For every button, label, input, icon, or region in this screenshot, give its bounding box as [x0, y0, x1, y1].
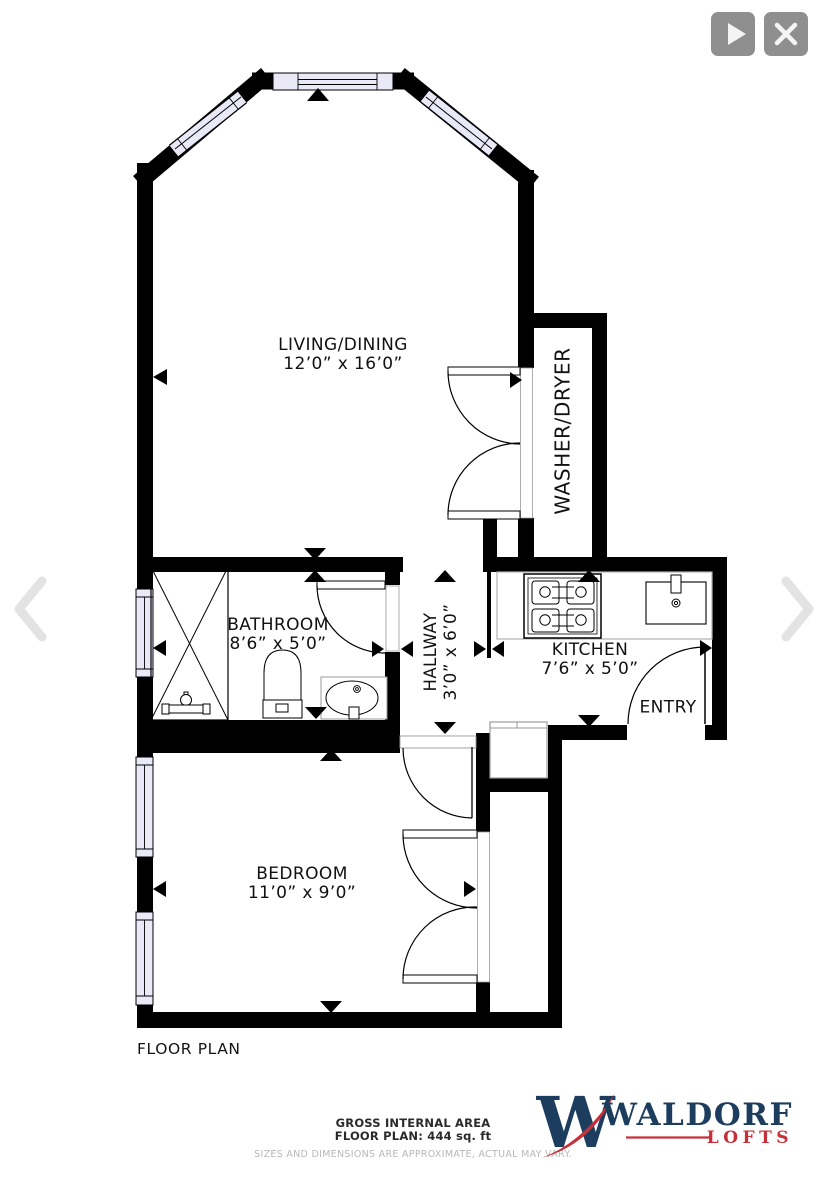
doors [317, 367, 705, 983]
room-label-entry: ENTRY [640, 699, 697, 718]
play-button[interactable] [711, 12, 755, 56]
room-label-washer-dryer: WASHER/DRYER [554, 347, 573, 514]
floor-plan-area-value: FLOOR PLAN: 444 sq. ft [254, 1130, 572, 1143]
chevron-left-icon [4, 570, 60, 648]
chevron-right-icon [768, 570, 824, 648]
play-icon [711, 12, 755, 56]
room-dimensions: 7’6” x 5’0” [542, 660, 639, 679]
wall-marker-triangles [153, 88, 712, 1013]
room-dimensions: 12’0” x 16’0” [278, 355, 408, 374]
waldorf-lofts-logo: W WALDORF LOFTS [536, 1088, 796, 1163]
bathroom-sink-icon [321, 677, 387, 719]
floor-plan-title: FLOOR PLAN [137, 1040, 241, 1058]
footer: GROSS INTERNAL AREA FLOOR PLAN: 444 sq. … [254, 1117, 572, 1160]
room-dimensions: 11’0” x 9’0” [248, 884, 356, 903]
prev-arrow-button[interactable] [4, 570, 60, 648]
toilet-icon [263, 650, 302, 718]
room-label-bedroom: BEDROOM 11’0” x 9’0” [248, 865, 356, 903]
room-name: HALLWAY [421, 604, 441, 701]
room-dimensions: 3’0” x 6’0” [441, 604, 461, 701]
utility-unit [490, 722, 547, 778]
room-name: ENTRY [640, 699, 697, 718]
room-label-kitchen: KITCHEN 7’6” x 5’0” [542, 641, 639, 679]
room-name: KITCHEN [542, 641, 639, 660]
room-name: BEDROOM [248, 865, 356, 884]
next-arrow-button[interactable] [768, 570, 824, 648]
room-dimensions: 8’6” x 5’0” [227, 635, 329, 654]
floor-plan-drawing [0, 0, 828, 1184]
close-icon [764, 12, 808, 56]
room-name: WASHER/DRYER [554, 347, 573, 514]
disclaimer-text: SIZES AND DIMENSIONS ARE APPROXIMATE, AC… [254, 1149, 572, 1160]
brand-suffix: LOFTS [707, 1128, 793, 1148]
room-label-living-dining: LIVING/DINING 12’0” x 16’0” [278, 336, 408, 374]
close-button[interactable] [764, 12, 808, 56]
floor-plan-viewer: LIVING/DINING 12’0” x 16’0” WASHER/DRYER… [0, 0, 828, 1184]
kitchen-sink-icon [646, 575, 706, 624]
room-label-hallway: HALLWAY 3’0” x 6’0” [421, 604, 461, 701]
room-name: BATHROOM [227, 616, 329, 635]
stove-icon [524, 574, 601, 638]
room-name: LIVING/DINING [278, 336, 408, 355]
room-label-bathroom: BATHROOM 8’6” x 5’0” [227, 616, 329, 654]
walls [137, 80, 727, 1028]
